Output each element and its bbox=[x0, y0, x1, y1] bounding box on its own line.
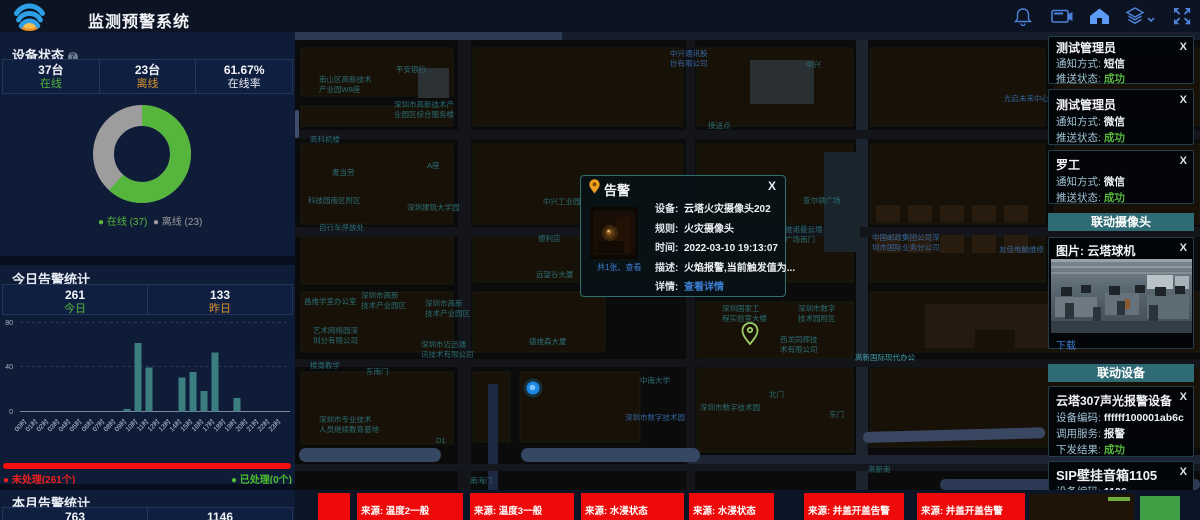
svg-text:高科机楼: 高科机楼 bbox=[310, 134, 340, 144]
svg-text:高新南: 高新南 bbox=[868, 464, 891, 474]
svg-text:圳市国际业务分公司: 圳市国际业务分公司 bbox=[872, 242, 940, 252]
svg-text:80: 80 bbox=[5, 320, 13, 327]
svg-text:远望谷大厦: 远望谷大厦 bbox=[536, 269, 574, 279]
svg-text:科技园南区附区: 科技园南区附区 bbox=[308, 195, 361, 205]
svg-text:楼周教学: 楼周教学 bbox=[310, 360, 340, 370]
svg-text:中国邮政集团公司深: 中国邮政集团公司深 bbox=[872, 232, 940, 242]
svg-text:技术园附区: 技术园附区 bbox=[798, 313, 836, 323]
svg-text:中兴: 中兴 bbox=[806, 59, 821, 69]
svg-text:业园区综合服务楼: 业园区综合服务楼 bbox=[394, 109, 454, 119]
svg-text:查尔顿广场: 查尔顿广场 bbox=[803, 195, 841, 205]
svg-text:深圳市高新: 深圳市高新 bbox=[361, 290, 399, 300]
svg-text:北门: 北门 bbox=[769, 390, 784, 399]
svg-text:A座: A座 bbox=[427, 160, 440, 170]
svg-text:中兴工业园: 中兴工业园 bbox=[543, 196, 581, 206]
svg-text:0: 0 bbox=[9, 409, 13, 416]
svg-text:接送点: 接送点 bbox=[708, 120, 731, 130]
svg-text:德维森大厦: 德维森大厦 bbox=[529, 336, 567, 346]
svg-text:圳分有限公司: 圳分有限公司 bbox=[313, 335, 358, 345]
svg-text:40: 40 bbox=[5, 364, 13, 371]
svg-text:中南大学: 中南大学 bbox=[640, 375, 670, 385]
svg-text:东南门: 东南门 bbox=[366, 366, 389, 376]
svg-text:深圳市迈迅通: 深圳市迈迅通 bbox=[421, 339, 466, 349]
svg-text:深圳市高新技术产: 深圳市高新技术产 bbox=[394, 99, 454, 109]
svg-text:深圳市数字技术园: 深圳市数字技术园 bbox=[700, 402, 760, 412]
svg-text:术有限公司: 术有限公司 bbox=[780, 344, 818, 354]
svg-text:西龙同辉技: 西龙同辉技 bbox=[780, 334, 818, 344]
svg-text:自行车停放处: 自行车停放处 bbox=[319, 222, 364, 232]
svg-text:高新国际现代办公: 高新国际现代办公 bbox=[855, 352, 915, 362]
svg-text:东门: 东门 bbox=[829, 409, 844, 419]
svg-text:份有限公司: 份有限公司 bbox=[670, 58, 708, 68]
svg-text:昌维学室办公室: 昌维学室办公室 bbox=[304, 296, 357, 306]
svg-text:产业园W8座: 产业园W8座 bbox=[319, 84, 361, 94]
svg-text:深圳市高新: 深圳市高新 bbox=[425, 298, 463, 308]
svg-text:技术产业园区: 技术产业园区 bbox=[425, 308, 470, 318]
svg-text:艺术网络园深: 艺术网络园深 bbox=[313, 325, 358, 335]
svg-text:中兴通讯股: 中兴通讯股 bbox=[670, 48, 708, 58]
svg-text:南山区高新技术: 南山区高新技术 bbox=[319, 74, 372, 84]
svg-text:深圳市数字: 深圳市数字 bbox=[798, 303, 836, 313]
svg-text:深圳建筑大学园: 深圳建筑大学园 bbox=[407, 202, 460, 212]
svg-text:深圳市专业技术: 深圳市专业技术 bbox=[319, 414, 372, 424]
svg-text:技术产业园区: 技术产业园区 bbox=[361, 300, 406, 310]
svg-text:D1: D1 bbox=[436, 436, 446, 445]
svg-text:深圳市数字技术园: 深圳市数字技术园 bbox=[625, 412, 685, 422]
svg-text:程实验室大楼: 程实验室大楼 bbox=[722, 313, 767, 323]
svg-text:人员继续教育基地: 人员继续教育基地 bbox=[319, 424, 379, 434]
svg-text:讯技术有限公司: 讯技术有限公司 bbox=[421, 349, 474, 359]
svg-text:广场南门: 广场南门 bbox=[785, 234, 815, 244]
svg-text:南海门: 南海门 bbox=[470, 475, 493, 485]
svg-text:麦当劳: 麦当劳 bbox=[332, 167, 355, 177]
svg-text:深圳国家工: 深圳国家工 bbox=[722, 303, 760, 313]
svg-text:便利店: 便利店 bbox=[538, 233, 561, 243]
svg-text:维诺曼云境: 维诺曼云境 bbox=[785, 224, 823, 234]
svg-text:平安银行: 平安银行 bbox=[396, 64, 426, 74]
svg-text:友佳电脑维修: 友佳电脑维修 bbox=[999, 244, 1044, 254]
